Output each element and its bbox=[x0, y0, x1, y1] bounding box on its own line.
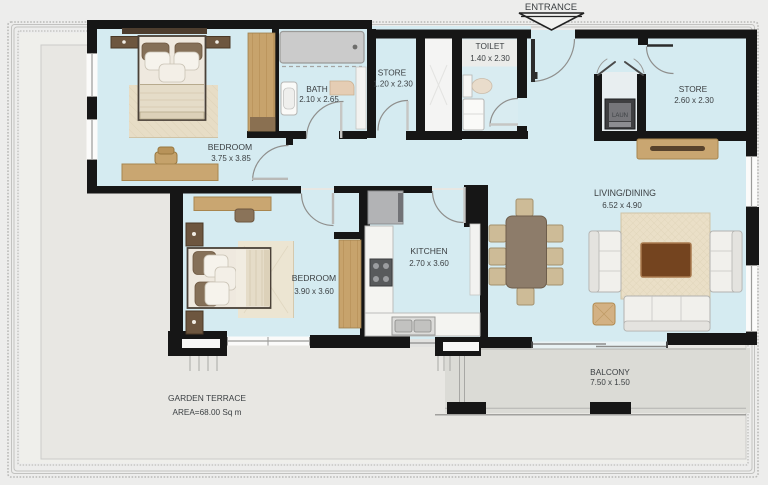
svg-text:AREA=68.00 Sq m: AREA=68.00 Sq m bbox=[173, 408, 242, 417]
svg-text:1.20 x 2.30: 1.20 x 2.30 bbox=[373, 80, 413, 89]
svg-text:GARDEN TERRACE: GARDEN TERRACE bbox=[168, 393, 246, 403]
svg-text:BEDROOM: BEDROOM bbox=[292, 273, 336, 283]
svg-text:KITCHEN: KITCHEN bbox=[410, 246, 447, 256]
svg-text:BATH: BATH bbox=[306, 84, 328, 94]
svg-text:2.60 x 2.30: 2.60 x 2.30 bbox=[674, 96, 714, 105]
svg-text:3.75 x 3.85: 3.75 x 3.85 bbox=[211, 154, 251, 163]
svg-text:2.70 x 3.60: 2.70 x 3.60 bbox=[409, 259, 449, 268]
svg-text:STORE: STORE bbox=[679, 84, 708, 94]
svg-text:BEDROOM: BEDROOM bbox=[208, 142, 252, 152]
svg-text:TOILET: TOILET bbox=[476, 41, 505, 51]
svg-text:BALCONY: BALCONY bbox=[590, 367, 630, 377]
svg-text:LAUN: LAUN bbox=[612, 113, 628, 119]
svg-text:3.90 x 3.60: 3.90 x 3.60 bbox=[294, 287, 334, 296]
svg-text:STORE: STORE bbox=[378, 68, 407, 78]
svg-text:ENTRANCE: ENTRANCE bbox=[525, 2, 577, 13]
svg-text:2.10 x 2.65: 2.10 x 2.65 bbox=[299, 95, 339, 104]
svg-text:6.52 x 4.90: 6.52 x 4.90 bbox=[602, 201, 642, 210]
svg-text:1.40 x 2.30: 1.40 x 2.30 bbox=[470, 54, 510, 63]
svg-text:7.50 x 1.50: 7.50 x 1.50 bbox=[590, 378, 630, 387]
svg-text:LIVING/DINING: LIVING/DINING bbox=[594, 188, 656, 198]
